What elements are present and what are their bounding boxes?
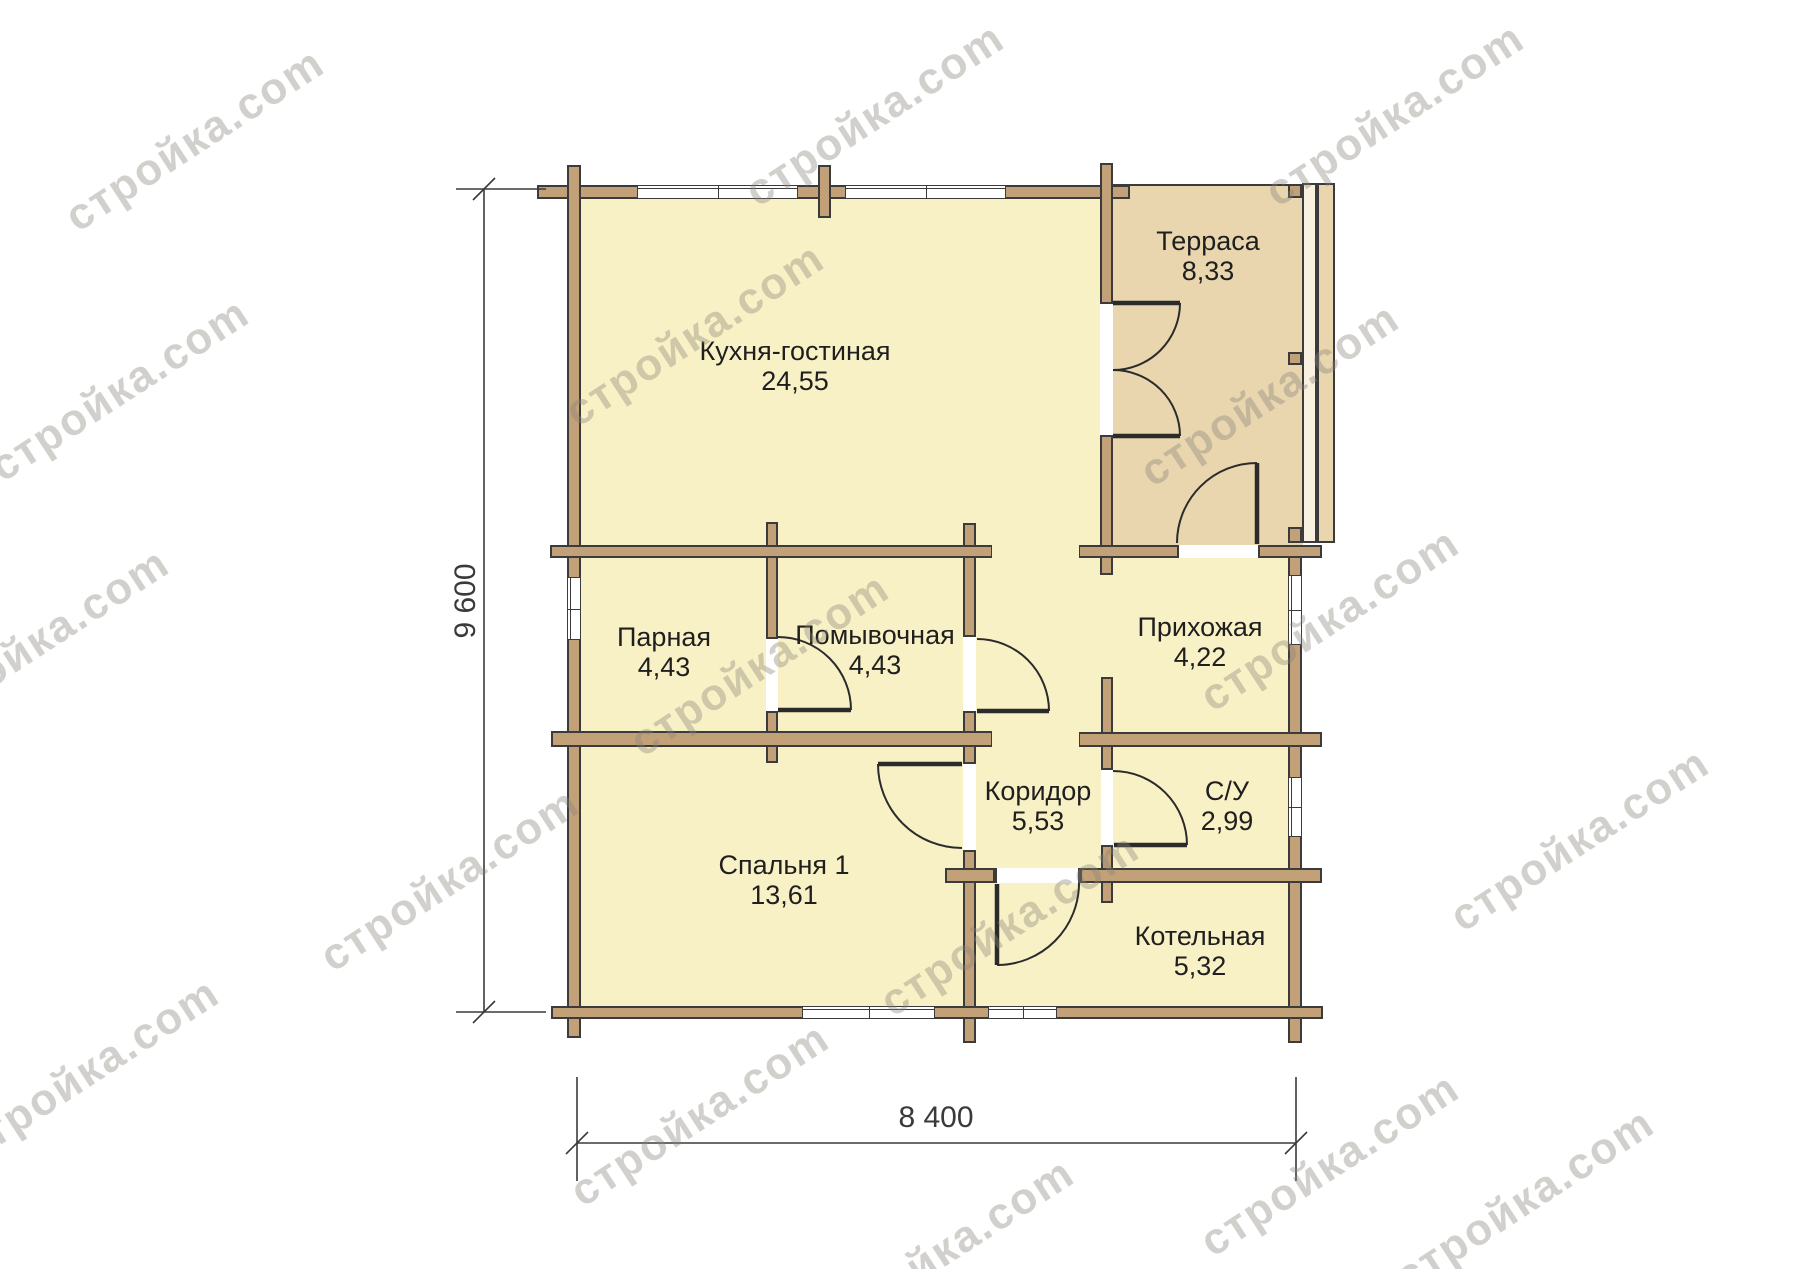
room-label-terrace: Терраса 8,33 xyxy=(1156,226,1260,286)
room-name: С/У xyxy=(1201,776,1254,806)
room-label-boiler-room: Котельная 5,32 xyxy=(1135,921,1266,981)
room-area: 4,43 xyxy=(795,650,954,680)
room-name: Кухня-гостиная xyxy=(699,336,890,366)
room-area: 4,43 xyxy=(617,652,711,682)
room-area: 5,32 xyxy=(1135,951,1266,981)
door-swing-arc xyxy=(1177,463,1257,543)
room-area: 2,99 xyxy=(1201,806,1254,836)
room-area: 24,55 xyxy=(699,366,890,396)
door-swing-arc xyxy=(1113,303,1180,370)
dimension-label-width: 8 400 xyxy=(898,1101,973,1135)
room-name: Котельная xyxy=(1135,921,1266,951)
dimension-label-height: 9 600 xyxy=(449,563,483,638)
room-name: Помывочная xyxy=(795,620,954,650)
room-label-corridor: Коридор 5,53 xyxy=(985,776,1092,836)
door-swing-arc xyxy=(1113,771,1187,845)
room-area: 8,33 xyxy=(1156,256,1260,286)
room-label-steam-room: Парная 4,43 xyxy=(617,622,711,682)
room-label-wash-room: Помывочная 4,43 xyxy=(795,620,954,680)
room-name: Терраса xyxy=(1156,226,1260,256)
room-area: 13,61 xyxy=(718,880,849,910)
door-swing-arc xyxy=(1113,370,1180,436)
room-name: Прихожая xyxy=(1137,612,1262,642)
floor-plan: Кухня-гостиная 24,55 Терраса 8,33 Парная… xyxy=(0,0,1800,1269)
room-label-kitchen-living: Кухня-гостиная 24,55 xyxy=(699,336,890,396)
room-name: Коридор xyxy=(985,776,1092,806)
room-label-bedroom-1: Спальня 1 13,61 xyxy=(718,850,849,910)
room-label-bathroom: С/У 2,99 xyxy=(1201,776,1254,836)
door-swing-arc xyxy=(878,764,962,848)
room-area: 4,22 xyxy=(1137,642,1262,672)
door-swing-arc xyxy=(997,883,1079,965)
room-name: Спальня 1 xyxy=(718,850,849,880)
room-name: Парная xyxy=(617,622,711,652)
door-swing-arc xyxy=(977,639,1049,711)
room-area: 5,53 xyxy=(985,806,1092,836)
room-label-hallway: Прихожая 4,22 xyxy=(1137,612,1262,672)
